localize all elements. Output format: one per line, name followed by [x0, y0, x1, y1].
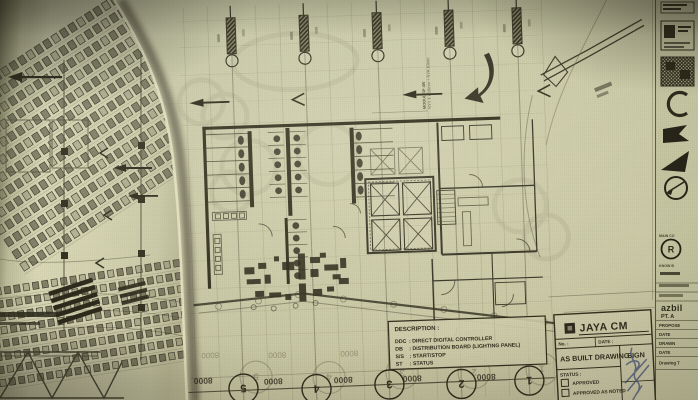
no-label: No. : [558, 341, 569, 347]
azbil-logo: azbil [661, 303, 683, 313]
sign-label: SIGN [627, 350, 645, 360]
svg-text:: STATUS: : STATUS [410, 360, 434, 367]
blueprint-photo: MODUL 3P 4W NYY 4 x 16mm + NYA 10mm [0, 0, 698, 400]
svg-text:: START/STOP: : START/STOP [409, 352, 446, 359]
status-label: STATUS : [560, 371, 582, 378]
description-box: DESCRIPTION : DDC : DIRECT DIGITAL CONTR… [388, 316, 547, 369]
svg-text:Drawing T: Drawing T [659, 361, 680, 366]
svg-text:S/S: S/S [395, 354, 404, 360]
svg-text:DDC: DDC [395, 339, 407, 345]
grid-bubble-3: 3 [386, 378, 393, 390]
svg-text:DB: DB [395, 346, 403, 352]
svg-text:ST: ST [396, 361, 404, 367]
svg-text:8000: 8000 [333, 375, 353, 386]
svg-text:8000: 8000 [268, 350, 287, 360]
blueprint-scene: MODUL 3P 4W NYY 4 x 16mm + NYA 10mm [0, 0, 698, 400]
grid-bubble-1: 1 [526, 374, 533, 386]
svg-text:8000: 8000 [263, 376, 283, 387]
title-block: JAYA CM No. : DATE : AS BUILT DRAWING SI… [554, 310, 656, 400]
margin-legend-strip: MAIN CO R KNOW B azbil PT. A PROPOSE [653, 0, 698, 400]
svg-text:8000: 8000 [201, 350, 220, 360]
svg-text:8000: 8000 [476, 372, 496, 383]
svg-text:DRAWN: DRAWN [659, 341, 675, 346]
svg-text:8000: 8000 [402, 373, 422, 384]
margin-note: MAIN CO [659, 234, 675, 238]
hatch-box-icon [661, 57, 694, 86]
svg-text:DATE: DATE [659, 350, 671, 355]
margin-note: KNOW B [659, 264, 674, 268]
svg-text:PROPOSE: PROPOSE [659, 323, 680, 328]
svg-text:8000: 8000 [340, 349, 359, 359]
svg-text:R: R [668, 245, 675, 255]
grid-bubble-5: 5 [240, 382, 247, 394]
date-label: DATE : [598, 339, 614, 345]
grid-bubble-2: 2 [458, 377, 465, 389]
svg-text:DATE: DATE [659, 332, 671, 337]
side-company: PT. A [661, 314, 674, 320]
